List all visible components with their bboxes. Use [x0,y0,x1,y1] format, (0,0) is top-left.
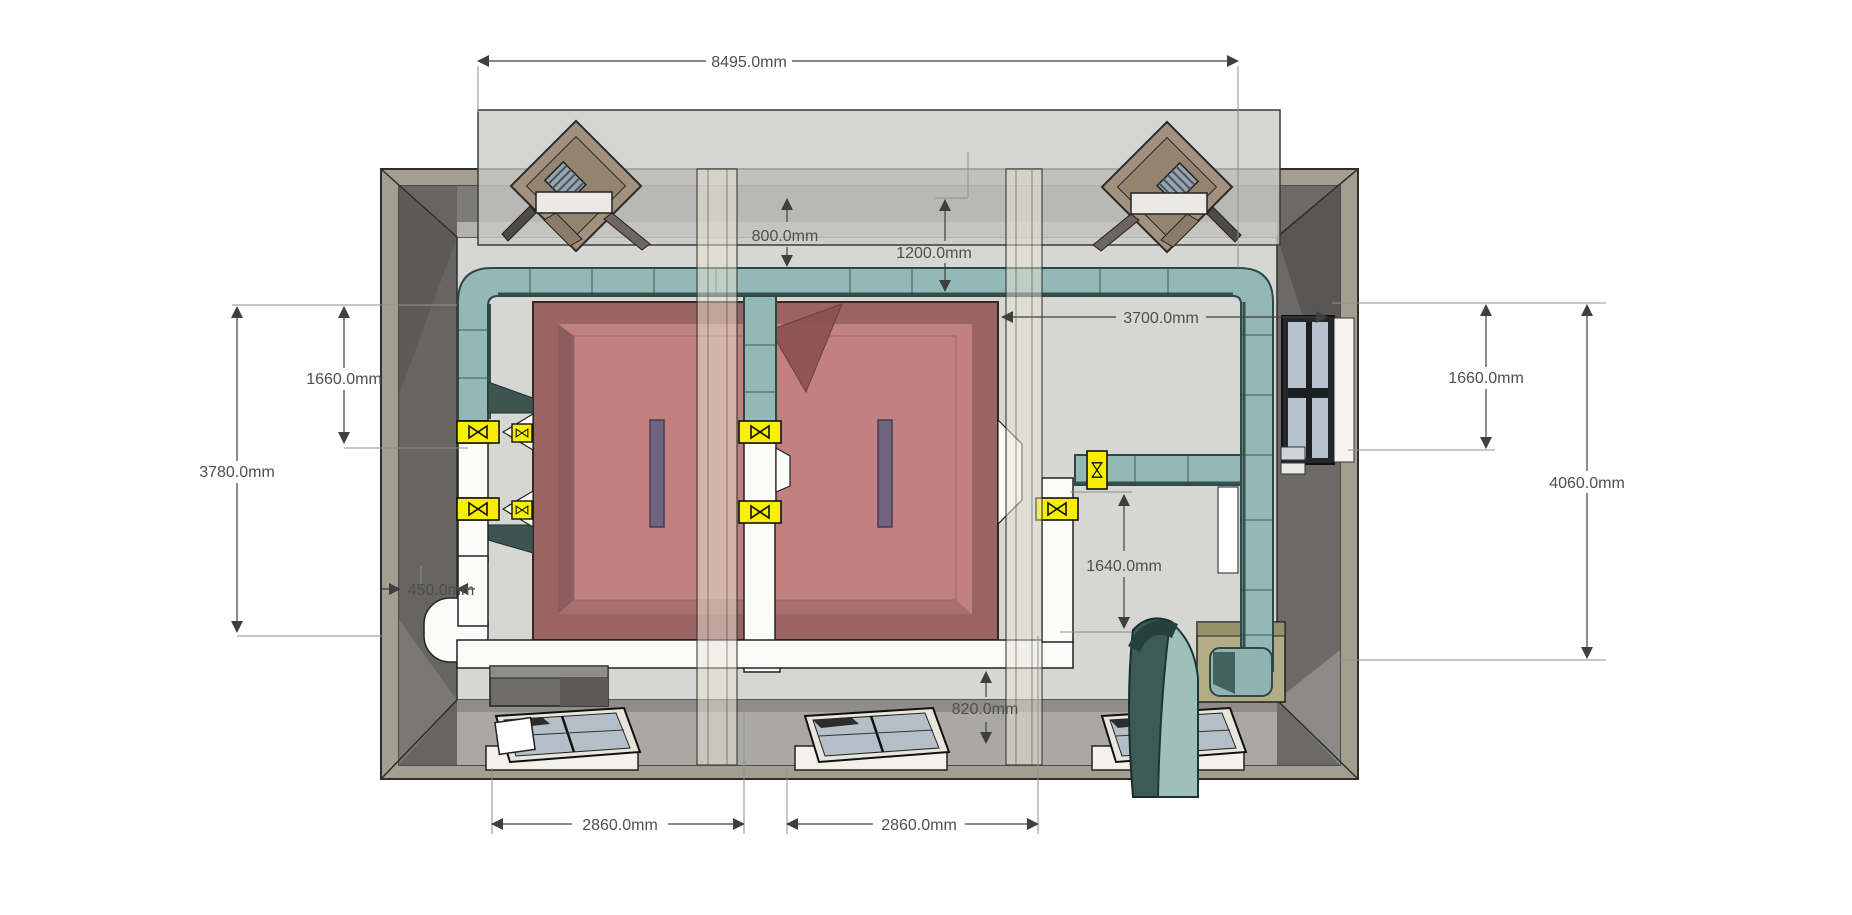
dim-label-820: 820.0mm [952,701,1019,718]
panel-upright [1218,487,1238,573]
damper-valve-icon [512,501,532,519]
hatch-strap [495,718,535,755]
unit-inner-shade-left [558,324,574,614]
dim-label-800: 800.0mm [752,228,819,245]
dim-label-4060: 4060.0mm [1549,475,1625,492]
dim-label-1200: 1200.0mm [896,245,972,262]
duct-layout-drawing: 8495.0mm 800.0mm 1200.0mm 3700.0mm 1660.… [0,0,1852,915]
duct-center-seg2 [744,521,775,643]
exhaust-fan-duct [1128,618,1198,797]
duct-center-seg1 [744,443,776,505]
dim-label-overall-width: 8495.0mm [711,54,787,71]
wall-vent-upper [1281,447,1305,460]
cad-plan-view: 8495.0mm 800.0mm 1200.0mm 3700.0mm 1660.… [0,0,1852,915]
funnel-center [776,448,790,492]
window-mullion-v [1306,322,1312,458]
dim-label-3780: 3780.0mm [199,464,275,481]
damper-valve-icon [739,501,781,523]
dim-label-left-1660: 1660.0mm [306,371,382,388]
dim-label-right-1660: 1660.0mm [1448,370,1524,387]
window-sill [1334,318,1354,462]
dim-label-1640: 1640.0mm [1086,558,1162,575]
floor-hatch [795,708,949,770]
dim-label-2860-left: 2860.0mm [582,817,658,834]
damper-valve-icon [457,498,499,520]
duct-left-seg1 [458,443,488,498]
duct-bottom-band [457,640,1073,668]
unit-slot-right [878,420,892,527]
dim-label-3700: 3700.0mm [1123,310,1199,327]
damper-valve-icon [457,421,499,443]
partition-right [1006,169,1042,765]
wall-vent-lower [1281,463,1305,474]
damper-valve-icon [739,421,781,443]
machine-box [490,666,608,706]
unit-slot-left [650,420,664,527]
damper-valve-icon [512,424,532,442]
damper-valve-icon [1087,451,1107,489]
dim-label-2860-right: 2860.0mm [881,817,957,834]
duct-center-drop [744,296,776,423]
dim-label-450: 450.0mm [408,582,475,599]
partition-left [697,169,737,765]
